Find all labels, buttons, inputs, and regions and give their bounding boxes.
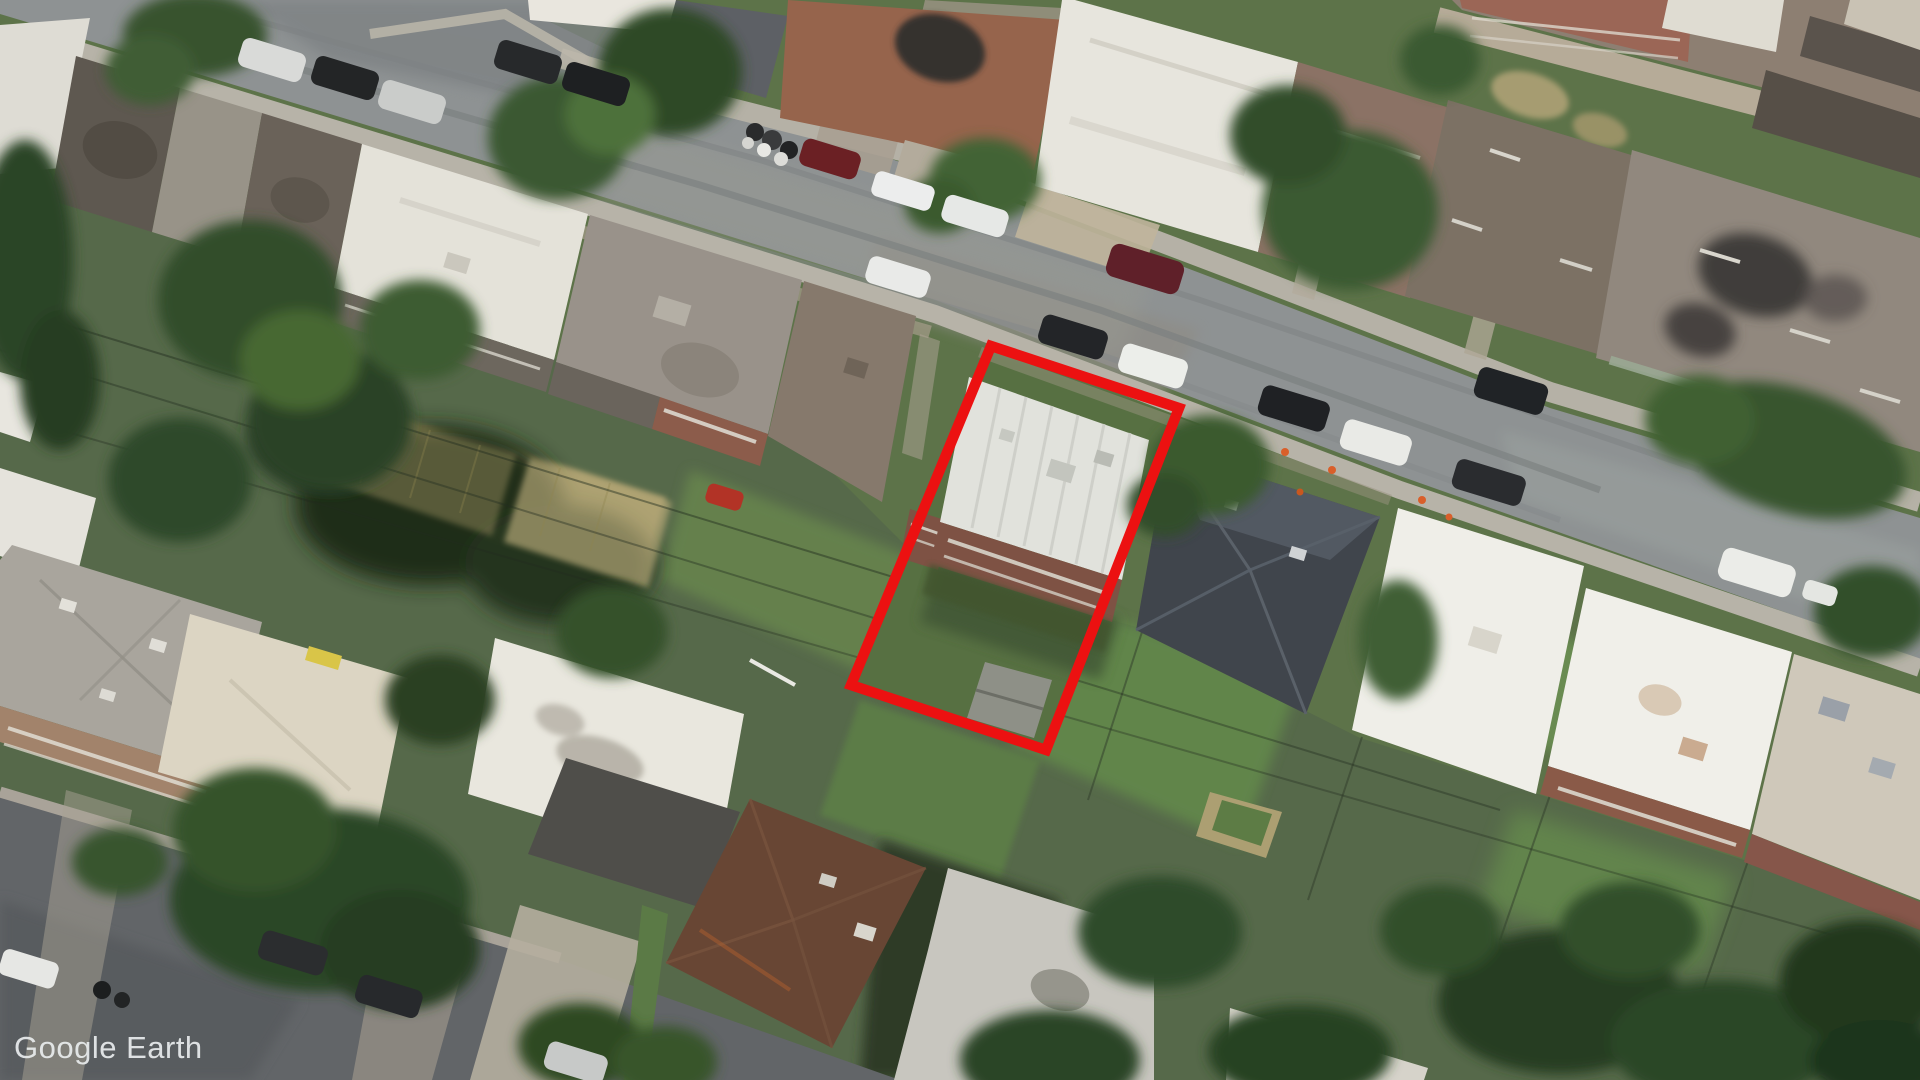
svg-text:Google Earth: Google Earth xyxy=(14,1030,203,1065)
